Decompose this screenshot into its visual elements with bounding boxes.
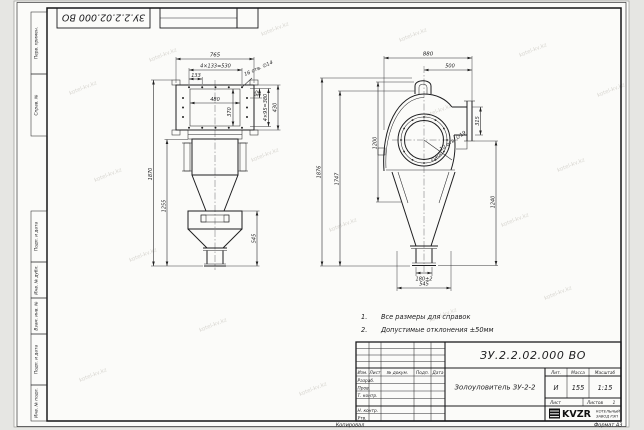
side-dim-880: 880 — [423, 52, 434, 58]
drawing-canvas: kotel-kv.kz kotel-kv.kz kotel-kv.kz kote… — [0, 0, 644, 430]
front-dim-480: 480 — [210, 97, 220, 103]
side-dim-1876: 1876 — [316, 166, 322, 179]
margin-label-sprav-no: Справ. № — [34, 94, 40, 115]
mass-label: Масса — [571, 370, 585, 376]
front-dim-530: 4×133=530 — [200, 64, 231, 70]
company-name: KVZR — [562, 409, 592, 420]
sheets-label: Листов — [586, 400, 604, 406]
company-line2: ЗАВОД РЭП — [596, 415, 618, 419]
col-doc: № докум. — [386, 370, 408, 376]
side-dim-1747: 1747 — [334, 172, 340, 186]
col-data: Дата — [431, 370, 443, 376]
front-dim-545: 545 — [251, 234, 257, 244]
mass-value: 155 — [572, 384, 585, 392]
footer-format: Формат А3 — [594, 423, 622, 429]
sheets-value: 1 — [613, 400, 616, 406]
title-product-name: Золоуловитель ЗУ-2-2 — [454, 384, 536, 392]
top-stamp-doc-number: ЗУ.2.2.02.000 ВО — [61, 12, 145, 23]
front-dim-430: 430 — [272, 103, 278, 113]
margin-label-inv-dubl: Инв. № дубл. — [34, 265, 40, 294]
side-dim-1240: 1240 — [490, 196, 496, 209]
col-izm: Изм. — [357, 370, 367, 376]
front-dim-1255: 1255 — [161, 200, 167, 213]
front-dim-370: 370 — [227, 107, 233, 117]
scale-value: 1:15 — [598, 384, 613, 392]
side-dim-1200: 1200 — [372, 137, 378, 150]
company-logo: KVZR КОТЕЛЬНЫЙ ЗАВОД РЭП — [549, 409, 620, 421]
lit-label: Лит. — [550, 370, 561, 376]
margin-label-podp-data-2: Подп. и дата — [34, 345, 40, 375]
front-dim-765: 765 — [210, 53, 221, 59]
note-1-text: Все размеры для справок — [381, 313, 470, 321]
side-dim-500: 500 — [445, 64, 455, 70]
side-dim-545: 545 — [419, 282, 429, 288]
front-dim-380: 4×95=380 — [263, 94, 269, 121]
title-doc-number: ЗУ.2.2.02.000 ВО — [480, 349, 586, 362]
company-line1: КОТЕЛЬНЫЙ — [596, 409, 620, 414]
col-podp: Подп. — [416, 370, 429, 376]
row-utv: Утв. — [358, 415, 367, 421]
margin-label-inv-podl: Инв. № подл. — [34, 388, 40, 418]
row-tkontr: Т. контр. — [358, 393, 378, 399]
margin-label-podp-data-1: Подп. и дата — [34, 222, 40, 252]
paper-sheet — [14, 1, 629, 427]
side-dim-315: 315 — [475, 116, 481, 126]
note-2-number: 2. — [361, 326, 367, 334]
margin-label-perv-primen: Перв. примен. — [34, 27, 40, 59]
note-2-text: Допустимые отклонения ±50мм — [380, 326, 494, 334]
lit-value: И — [554, 384, 559, 392]
scale-label: Масштаб — [595, 370, 616, 376]
footer-kopiroval: Копировал — [336, 423, 365, 429]
margin-label-vzam-inv: Взам. инв. № — [34, 301, 40, 331]
sheet-label: Лист — [549, 400, 561, 406]
note-1-number: 1. — [361, 313, 367, 321]
front-dim-1870: 1870 — [148, 168, 154, 181]
row-prov: Пров. — [358, 385, 371, 391]
col-list: Лист — [369, 370, 381, 376]
drawing-sheet: kotel-kv.kz kotel-kv.kz kotel-kv.kz kote… — [0, 0, 644, 430]
row-razrab: Разраб. — [358, 378, 375, 384]
row-nkontr: Н. контр. — [358, 408, 379, 414]
